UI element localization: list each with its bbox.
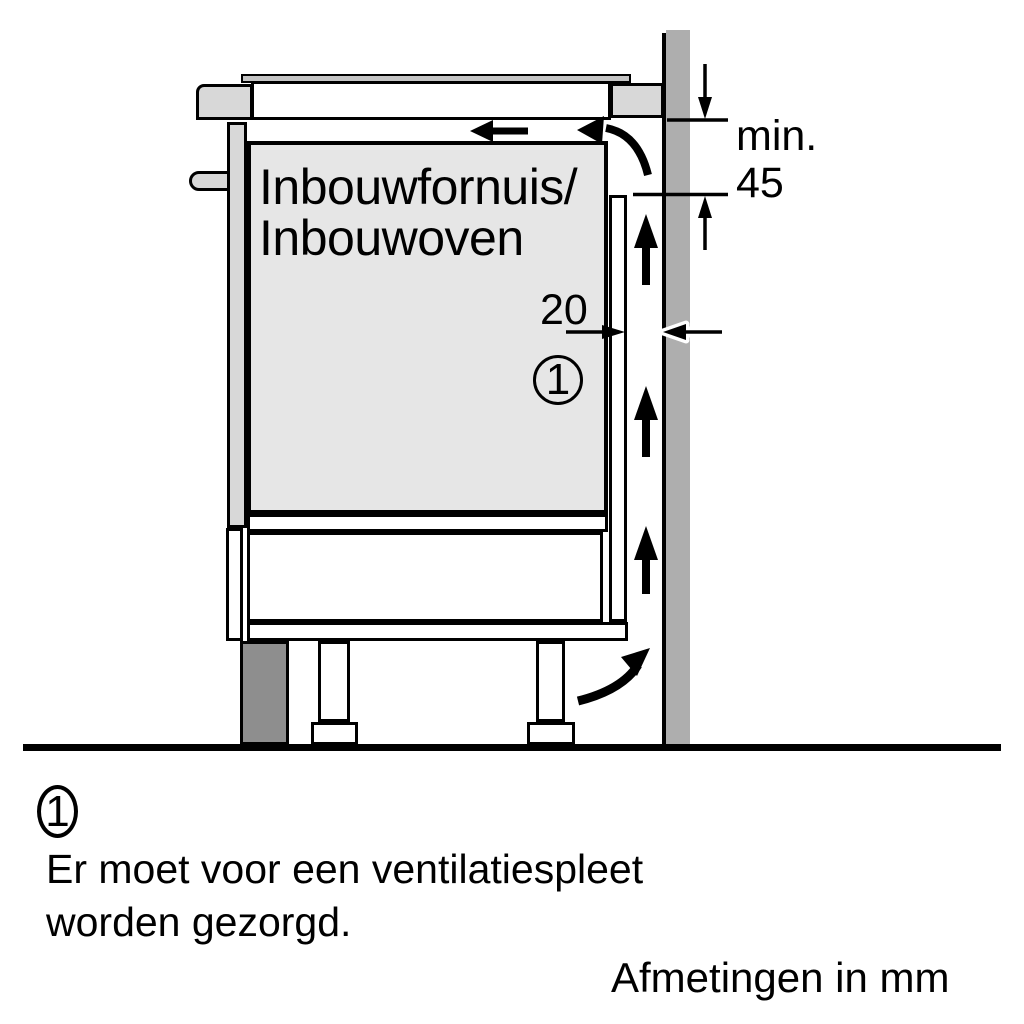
units-note: Afmetingen in mm [611, 957, 949, 999]
legend-text-line1: Er moet voor een ventilatiespleet [46, 843, 643, 896]
appliance-label-line2: Inbouwoven [259, 213, 577, 264]
callout-circle: 1 [533, 355, 583, 405]
legend-text: Er moet voor een ventilatiespleet worden… [46, 843, 643, 949]
worktop-left [196, 84, 253, 120]
dim-min-label: min. [736, 115, 817, 158]
legend-text-line2: worden gezorgd. [46, 896, 643, 949]
airflow-curve-bottom-arrow [578, 648, 650, 701]
hob-body [251, 81, 611, 120]
callout-number: 1 [546, 355, 570, 405]
dim-20-label: 20 [540, 289, 588, 332]
dim-45-down-arrow [698, 64, 712, 119]
front-leg-foot [311, 722, 358, 745]
cabinet-base-rail [247, 622, 628, 641]
installation-diagram: Inbouwfornuis/ Inbouwoven [0, 0, 1024, 1024]
wall [666, 30, 690, 745]
front-leg-shaft [318, 641, 350, 722]
appliance-label: Inbouwfornuis/ Inbouwoven [259, 162, 577, 264]
drawer-front [247, 532, 603, 622]
dim-45-up-arrow [698, 196, 712, 250]
worktop-right [610, 83, 664, 118]
dim-45-label: 45 [736, 162, 784, 205]
floor-line [23, 744, 1001, 751]
airflow-left-arrow [470, 120, 528, 142]
plinth-panel [240, 641, 289, 745]
airflow-up-arrow-2 [634, 386, 658, 457]
legend-callout-circle: 1 [37, 785, 78, 838]
oven-handle [189, 171, 230, 191]
wall-edge-line [662, 33, 666, 745]
airflow-up-arrow-1 [634, 214, 658, 285]
appliance-label-line1: Inbouwfornuis/ [259, 162, 577, 213]
cabinet-right-panel [609, 195, 627, 622]
cabinet-left-lower-strip [226, 528, 243, 641]
legend-callout-number: 1 [45, 787, 69, 837]
cabinet-lower-rail [247, 514, 608, 532]
rear-leg-foot [527, 722, 575, 745]
rear-leg-shaft [536, 641, 565, 722]
airflow-up-arrow-3 [634, 526, 658, 594]
cabinet-left-panel [227, 122, 247, 528]
